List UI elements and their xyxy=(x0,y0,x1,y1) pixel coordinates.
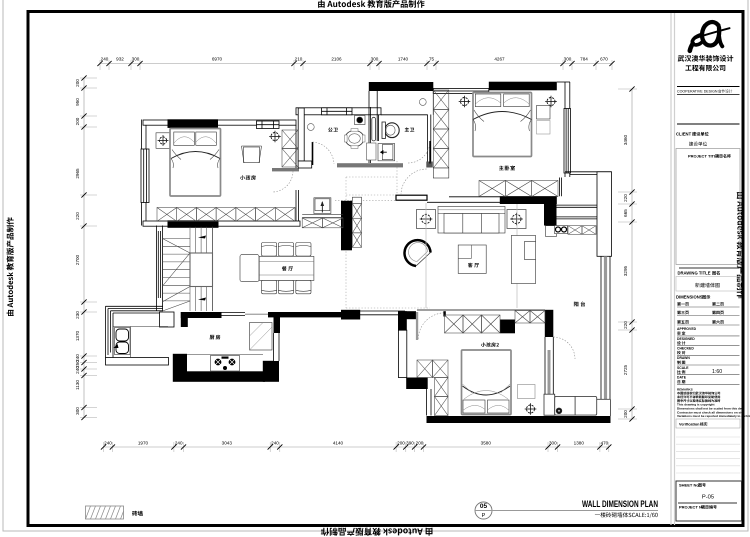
svg-text:670: 670 xyxy=(600,57,608,62)
svg-text:CHECKED: CHECKED xyxy=(677,347,694,351)
svg-text:200: 200 xyxy=(416,441,424,446)
svg-text:P: P xyxy=(482,513,486,519)
svg-text:220: 220 xyxy=(623,321,628,329)
svg-text:932: 932 xyxy=(116,57,124,62)
svg-text:240: 240 xyxy=(101,57,109,62)
svg-text:2965: 2965 xyxy=(75,168,80,179)
svg-text:2106: 2106 xyxy=(331,57,342,62)
svg-text:SHEET No.: SHEET No. xyxy=(679,483,700,488)
svg-text:210: 210 xyxy=(295,57,303,62)
svg-text:SCALE: SCALE xyxy=(677,366,689,370)
svg-text:P-05: P-05 xyxy=(702,495,714,501)
svg-text:200: 200 xyxy=(397,441,405,446)
svg-text:DRAWN: DRAWN xyxy=(677,356,690,360)
svg-text:390: 390 xyxy=(406,441,414,446)
svg-text:PROJECT No.: PROJECT No. xyxy=(679,505,705,510)
svg-text:Variations must be reported im: Variations must be reported immediately … xyxy=(677,414,750,418)
svg-text:300: 300 xyxy=(371,57,379,62)
svg-text:75: 75 xyxy=(429,57,435,62)
svg-text:240: 240 xyxy=(75,366,80,374)
svg-text:1740: 1740 xyxy=(398,57,409,62)
svg-text:2700: 2700 xyxy=(75,254,80,265)
svg-text:220: 220 xyxy=(75,212,80,220)
svg-text:3460: 3460 xyxy=(623,134,628,145)
svg-text:665: 665 xyxy=(623,209,628,217)
svg-text:200: 200 xyxy=(623,410,628,418)
svg-text:4267: 4267 xyxy=(494,57,505,62)
svg-text:DIMENSIONS: DIMENSIONS xyxy=(676,295,703,300)
svg-text:REMARKS: REMARKS xyxy=(677,388,693,392)
svg-text:950: 950 xyxy=(75,98,80,106)
svg-text:1970: 1970 xyxy=(138,441,149,446)
svg-text:300: 300 xyxy=(549,441,557,446)
svg-text:1130: 1130 xyxy=(75,380,80,390)
svg-text:784: 784 xyxy=(580,57,588,62)
svg-text:3580: 3580 xyxy=(481,441,492,446)
svg-text:200: 200 xyxy=(75,79,80,87)
svg-text:1:60: 1:60 xyxy=(712,369,722,375)
svg-text:1370: 1370 xyxy=(75,330,80,341)
svg-text:DRAWING TITLE: DRAWING TITLE xyxy=(677,271,710,276)
svg-text:240: 240 xyxy=(271,441,279,446)
svg-text:300: 300 xyxy=(564,57,572,62)
svg-text:2725: 2725 xyxy=(623,364,628,375)
svg-text:300: 300 xyxy=(75,407,80,415)
svg-text:1380: 1380 xyxy=(574,441,585,446)
svg-text:DESIGNED: DESIGNED xyxy=(677,337,695,341)
svg-text:Verification: Verification xyxy=(679,423,700,427)
svg-text:240: 240 xyxy=(175,441,183,446)
svg-text:3295: 3295 xyxy=(623,265,628,276)
svg-text:COOPERATIVE DESIGN: COOPERATIVE DESIGN xyxy=(677,90,718,94)
svg-text:6970: 6970 xyxy=(212,57,223,62)
svg-text:200: 200 xyxy=(75,117,80,125)
svg-text:APPROVED: APPROVED xyxy=(677,327,697,331)
svg-text:220: 220 xyxy=(623,194,628,202)
svg-text:230: 230 xyxy=(75,311,80,319)
svg-text:DATE: DATE xyxy=(677,376,687,380)
svg-text:4140: 4140 xyxy=(333,441,344,446)
svg-text:300: 300 xyxy=(132,57,140,62)
svg-text:470: 470 xyxy=(601,441,609,446)
svg-text:05: 05 xyxy=(480,503,488,510)
svg-text:CLIENT: CLIENT xyxy=(676,132,692,137)
svg-text:WALL DIMENSION PLAN: WALL DIMENSION PLAN xyxy=(582,499,658,510)
svg-text:PROJECT TITLE: PROJECT TITLE xyxy=(688,154,719,159)
svg-text:3043: 3043 xyxy=(222,441,233,446)
svg-text:240: 240 xyxy=(104,441,112,446)
